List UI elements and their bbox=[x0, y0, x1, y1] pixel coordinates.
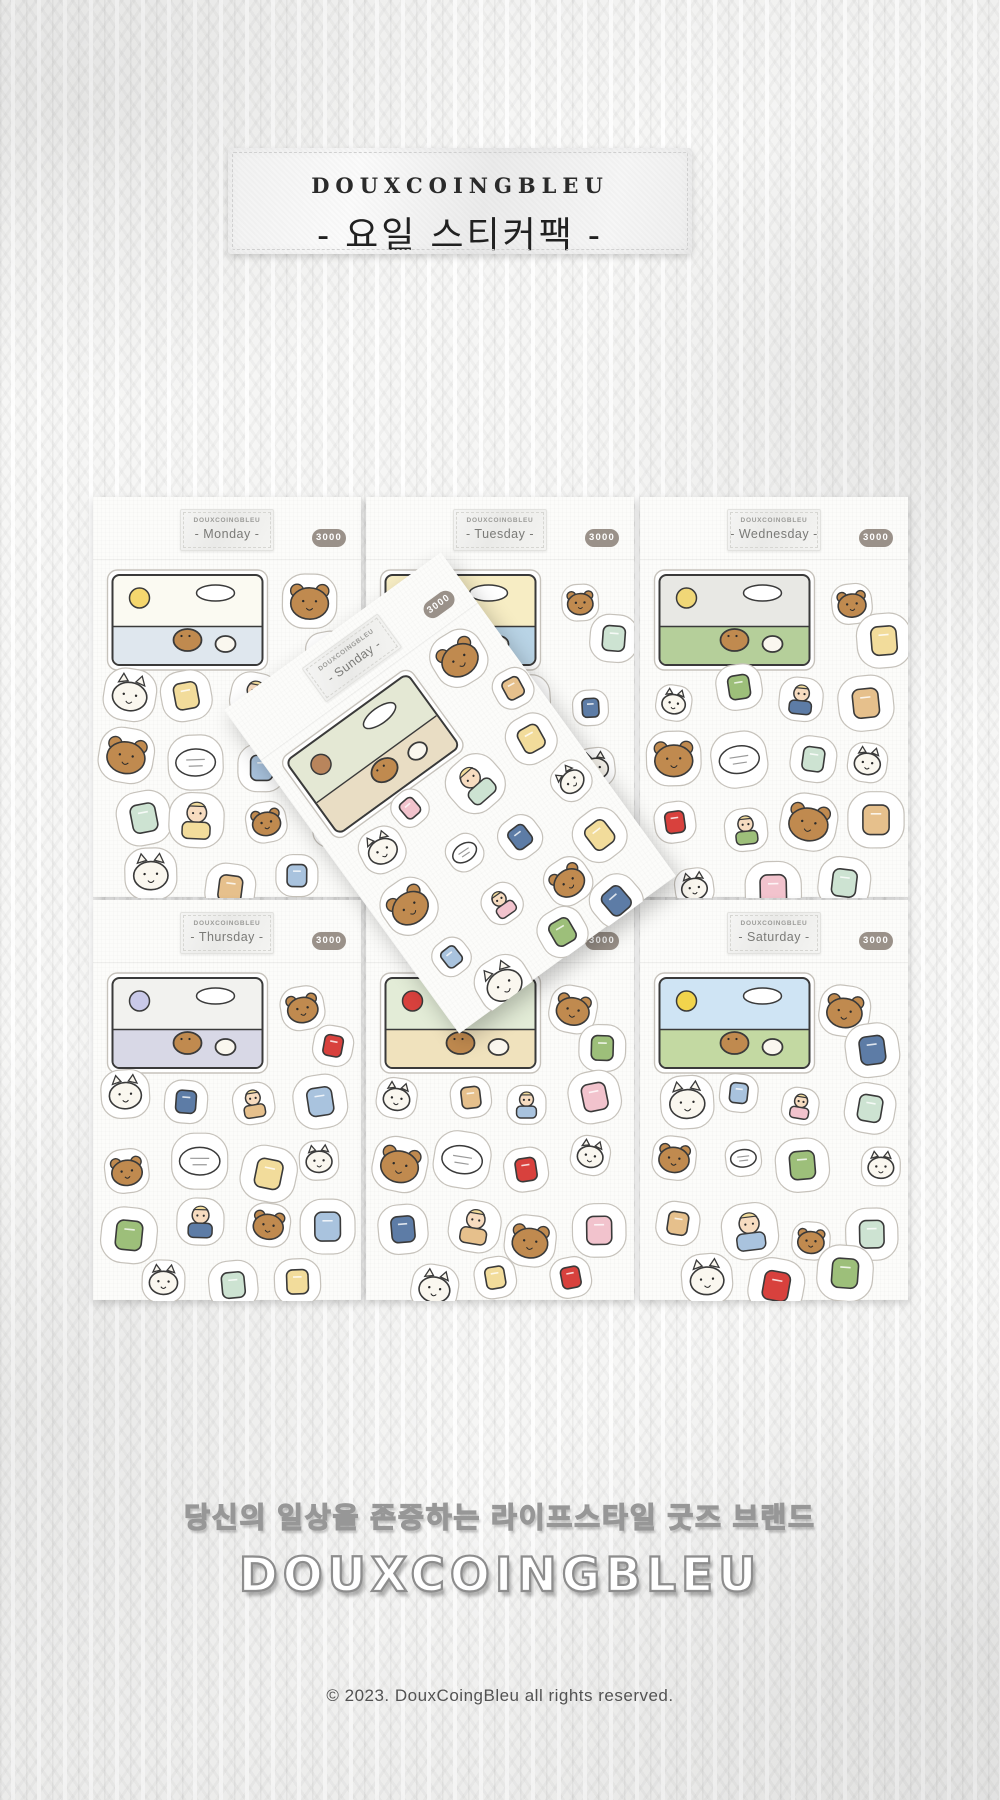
sticker-doodle bbox=[561, 584, 599, 622]
sticker-doodle bbox=[352, 820, 412, 880]
sticker-doodle bbox=[430, 1128, 494, 1192]
sticker-doodle bbox=[374, 1075, 420, 1121]
sticker-doodle bbox=[157, 667, 216, 726]
price-badge: 3000 bbox=[585, 529, 619, 547]
sticker-doodle bbox=[646, 731, 702, 787]
sticker-doodle bbox=[724, 1139, 763, 1178]
sticker-doodle bbox=[653, 1199, 702, 1248]
sheet-header: DOUXCOINGBLEU - Thursday - 3000 bbox=[93, 900, 361, 963]
sticker-doodle bbox=[168, 792, 225, 849]
sticker-doodle bbox=[572, 1203, 626, 1257]
sticker-doodle bbox=[568, 1133, 614, 1179]
sticker-doodle bbox=[244, 1201, 293, 1250]
sticker-doodle bbox=[98, 1205, 159, 1266]
sticker-doodle bbox=[426, 931, 477, 982]
sheet-header: DOUXCOINGBLEU - Tuesday - 3000 bbox=[366, 497, 634, 560]
sheet-day-text: - Saturday - bbox=[728, 930, 820, 944]
sheet-woven-label: DOUXCOINGBLEU - Wednesday - bbox=[727, 509, 821, 551]
price-badge: 3000 bbox=[312, 932, 346, 950]
sticker-doodle bbox=[491, 808, 550, 867]
sticker-doodle bbox=[652, 799, 698, 845]
sticker-area bbox=[640, 560, 908, 898]
sticker-doodle bbox=[708, 728, 771, 791]
sheet-brand-text: DOUXCOINGBLEU bbox=[728, 920, 820, 927]
sticker-doodle bbox=[654, 683, 694, 723]
sticker-doodle bbox=[855, 611, 908, 670]
sticker-doodle bbox=[290, 1071, 351, 1132]
sticker-doodle bbox=[407, 1261, 461, 1301]
sheet-woven-label: DOUXCOINGBLEU - Monday - bbox=[180, 509, 274, 551]
sticker-doodle bbox=[163, 1079, 209, 1125]
sheet-day-text: - Thursday - bbox=[181, 930, 273, 944]
price-badge: 3000 bbox=[312, 529, 346, 547]
sticker-doodle bbox=[588, 613, 634, 664]
sticker-sheet-thursday: DOUXCOINGBLEU - Thursday - 3000 bbox=[93, 900, 361, 1300]
sticker-doodle bbox=[861, 1147, 900, 1186]
sticker-doodle bbox=[816, 854, 874, 898]
sheet-brand-text: DOUXCOINGBLEU bbox=[454, 517, 546, 524]
sheet-day-text: - Monday - bbox=[181, 527, 273, 541]
sticker-doodle bbox=[779, 1085, 821, 1127]
sticker-doodle bbox=[202, 861, 258, 898]
sticker-doodle bbox=[680, 1252, 735, 1301]
footer-tagline: 당신의 일상을 존중하는 라이프스타일 굿즈 브랜드 bbox=[0, 1496, 1000, 1536]
sticker-doodle bbox=[230, 1080, 277, 1127]
sheet-woven-label: DOUXCOINGBLEU - Saturday - bbox=[727, 912, 821, 954]
sticker-doodle bbox=[776, 789, 842, 855]
scene-sticker bbox=[655, 973, 815, 1073]
sticker-sheet-saturday: DOUXCOINGBLEU - Saturday - 3000 bbox=[640, 900, 908, 1300]
sheet-brand-text: DOUXCOINGBLEU bbox=[728, 517, 820, 524]
tag-brand-text: DOUXCOINGBLEU bbox=[228, 173, 692, 198]
sticker-doodle bbox=[777, 675, 825, 723]
sticker-doodle bbox=[277, 983, 327, 1033]
sticker-doodle bbox=[475, 876, 530, 931]
sticker-doodle bbox=[501, 1145, 551, 1195]
sticker-doodle bbox=[207, 1259, 260, 1301]
sticker-area bbox=[366, 963, 634, 1301]
sticker-area bbox=[640, 963, 908, 1301]
sticker-doodle bbox=[124, 847, 177, 898]
sticker-doodle bbox=[95, 724, 158, 787]
sticker-doodle bbox=[564, 1066, 625, 1127]
sheet-day-text: - Wednesday - bbox=[728, 527, 820, 541]
scene-sticker bbox=[108, 973, 268, 1073]
footer-brand-logo: DOUXCOINGBLEU bbox=[0, 1548, 1000, 1603]
sticker-doodle bbox=[368, 1132, 432, 1196]
price-badge: 3000 bbox=[859, 932, 893, 950]
sticker-doodle bbox=[745, 861, 802, 898]
sheet-header: DOUXCOINGBLEU - Monday - 3000 bbox=[93, 497, 361, 560]
sticker-doodle bbox=[719, 1200, 781, 1262]
sticker-doodle bbox=[815, 1243, 875, 1301]
price-badge: 3000 bbox=[859, 529, 893, 547]
sticker-doodle bbox=[445, 1197, 504, 1256]
sheet-brand-text: DOUXCOINGBLEU bbox=[181, 517, 273, 524]
scene-sticker bbox=[108, 570, 268, 670]
sticker-doodle bbox=[276, 854, 318, 896]
sticker-sheet-wednesday: DOUXCOINGBLEU - Wednesday - 3000 bbox=[640, 497, 908, 897]
sticker-doodle bbox=[243, 799, 290, 846]
sticker-doodle bbox=[100, 665, 160, 725]
sticker-doodle bbox=[841, 1080, 899, 1138]
sheet-header: DOUXCOINGBLEU - Saturday - 3000 bbox=[640, 900, 908, 963]
sticker-doodle bbox=[788, 733, 839, 784]
sheet-header: DOUXCOINGBLEU - Wednesday - 3000 bbox=[640, 497, 908, 560]
sticker-doodle bbox=[572, 689, 609, 726]
sticker-doodle bbox=[100, 1068, 151, 1119]
sticker-doodle bbox=[723, 806, 770, 853]
sticker-doodle bbox=[176, 1197, 224, 1245]
sticker-doodle bbox=[102, 1147, 151, 1196]
sticker-doodle bbox=[578, 1024, 626, 1072]
sticker-doodle bbox=[236, 1141, 301, 1206]
sticker-doodle bbox=[172, 1133, 228, 1189]
sticker-doodle bbox=[774, 1136, 832, 1194]
sticker-doodle bbox=[544, 754, 598, 808]
sticker-doodle bbox=[718, 1072, 760, 1114]
footer-copyright: © 2023. DouxCoingBleu all rights reserve… bbox=[0, 1686, 1000, 1706]
scene-sticker bbox=[655, 570, 815, 670]
sticker-doodle bbox=[310, 1023, 357, 1070]
sticker-doodle bbox=[299, 1140, 340, 1181]
tag-title-text: - 요일 스티커팩 - bbox=[228, 206, 692, 258]
sticker-doodle bbox=[142, 1259, 186, 1301]
sheet-day-text: - Tuesday - bbox=[454, 527, 546, 541]
price-badge: 3000 bbox=[420, 587, 458, 622]
sticker-doodle bbox=[274, 1258, 322, 1301]
sheet-brand-text: DOUXCOINGBLEU bbox=[181, 920, 273, 927]
top-fabric-tag: DOUXCOINGBLEU - 요일 스티커팩 - bbox=[228, 148, 692, 254]
sticker-doodle bbox=[167, 734, 224, 791]
sticker-doodle bbox=[507, 1085, 546, 1124]
sticker-doodle bbox=[498, 706, 564, 772]
sticker-doodle bbox=[300, 1199, 355, 1254]
sheet-woven-label: DOUXCOINGBLEU - Thursday - bbox=[180, 912, 274, 954]
sticker-doodle bbox=[673, 866, 716, 898]
sticker-doodle bbox=[282, 574, 337, 629]
sticker-doodle bbox=[440, 828, 490, 878]
sheet-woven-label: DOUXCOINGBLEU - Tuesday - bbox=[453, 509, 547, 551]
sticker-doodle bbox=[547, 1254, 594, 1301]
sticker-doodle bbox=[376, 1203, 430, 1257]
sticker-doodle bbox=[112, 787, 175, 850]
sticker-area bbox=[93, 963, 361, 1301]
sticker-doodle bbox=[845, 741, 889, 785]
sticker-doodle bbox=[744, 1254, 808, 1301]
sticker-doodle bbox=[659, 1074, 715, 1130]
sticker-doodle bbox=[448, 1075, 493, 1120]
sticker-doodle bbox=[650, 1134, 698, 1182]
sticker-doodle bbox=[836, 673, 897, 734]
sticker-doodle bbox=[848, 792, 904, 848]
